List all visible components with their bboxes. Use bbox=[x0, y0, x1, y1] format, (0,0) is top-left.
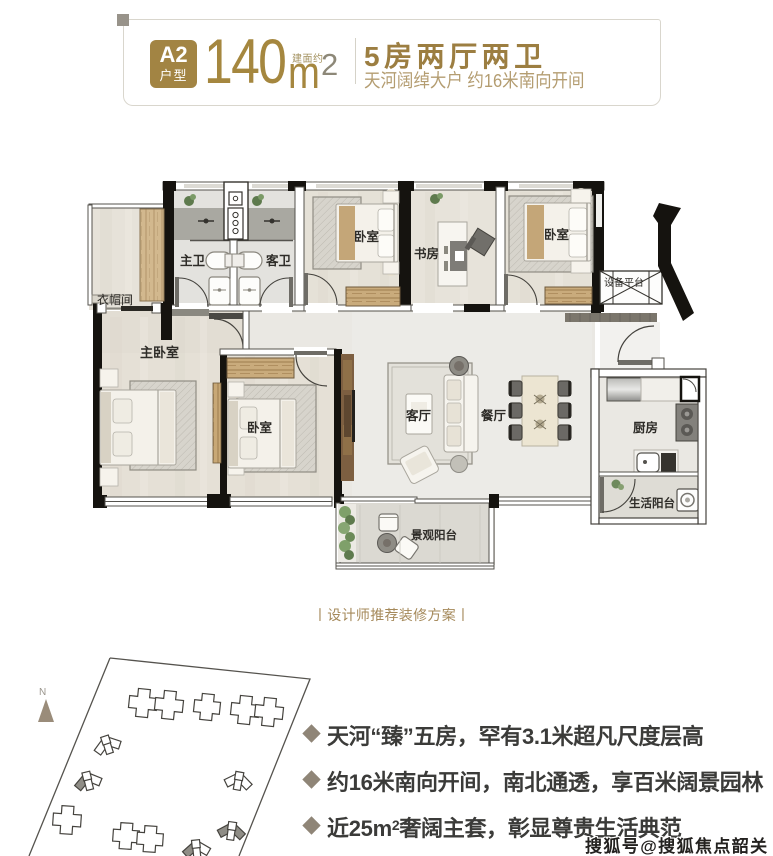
svg-text:卧室: 卧室 bbox=[247, 420, 273, 435]
svg-text:客卫: 客卫 bbox=[265, 253, 292, 268]
svg-text:主卫: 主卫 bbox=[180, 253, 206, 268]
svg-text:书房: 书房 bbox=[414, 246, 439, 261]
svg-text:主卧室: 主卧室 bbox=[140, 345, 179, 360]
svg-text:生活阳台: 生活阳台 bbox=[629, 496, 675, 510]
svg-text:景观阳台: 景观阳台 bbox=[410, 528, 457, 542]
svg-text:N: N bbox=[39, 687, 46, 698]
svg-text:卧室: 卧室 bbox=[544, 227, 570, 242]
svg-text:餐厅: 餐厅 bbox=[480, 408, 507, 423]
svg-text:客厅: 客厅 bbox=[405, 408, 432, 423]
svg-text:卧室: 卧室 bbox=[354, 229, 380, 244]
svg-text:厨房: 厨房 bbox=[633, 420, 658, 435]
svg-text:衣帽间: 衣帽间 bbox=[97, 292, 133, 307]
svg-text:设备平台: 设备平台 bbox=[604, 276, 644, 289]
